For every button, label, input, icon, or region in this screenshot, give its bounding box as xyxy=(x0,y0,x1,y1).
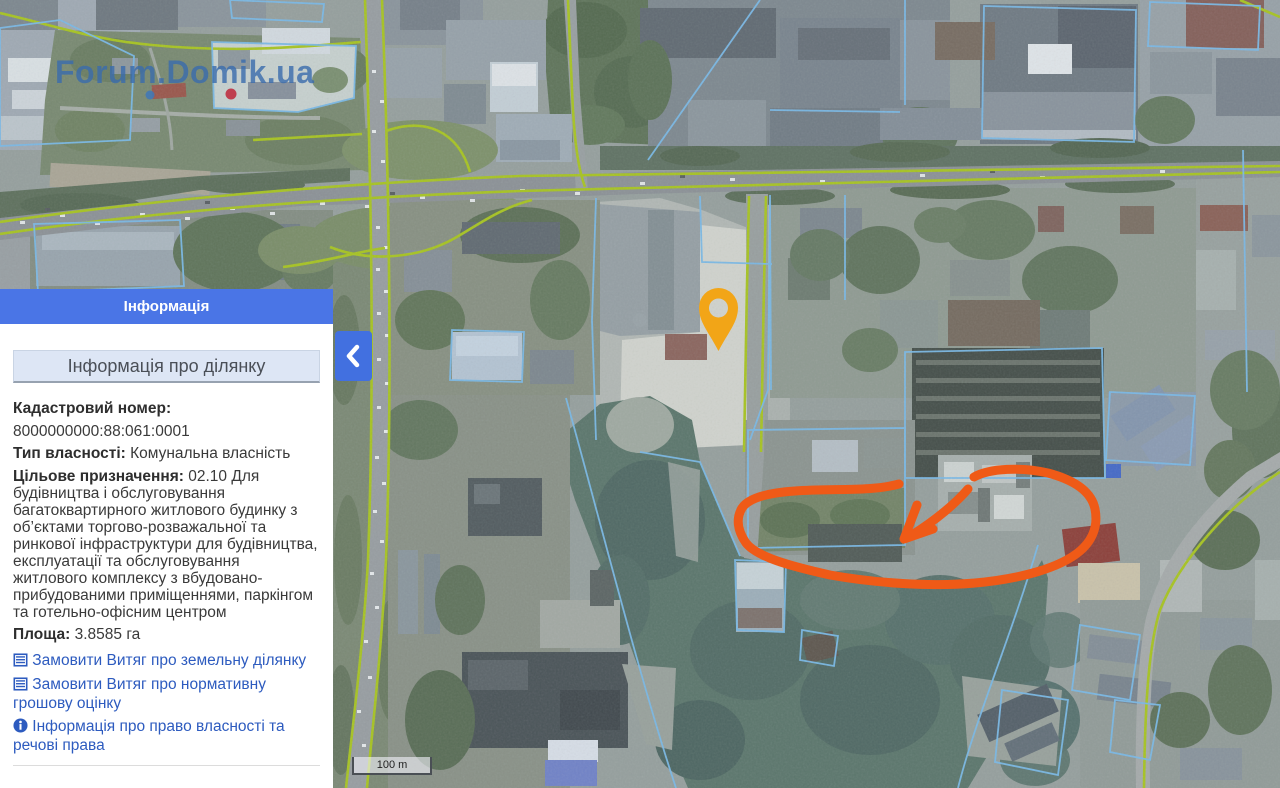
svg-text:Forum.Domik.ua: Forum.Domik.ua xyxy=(55,54,314,90)
